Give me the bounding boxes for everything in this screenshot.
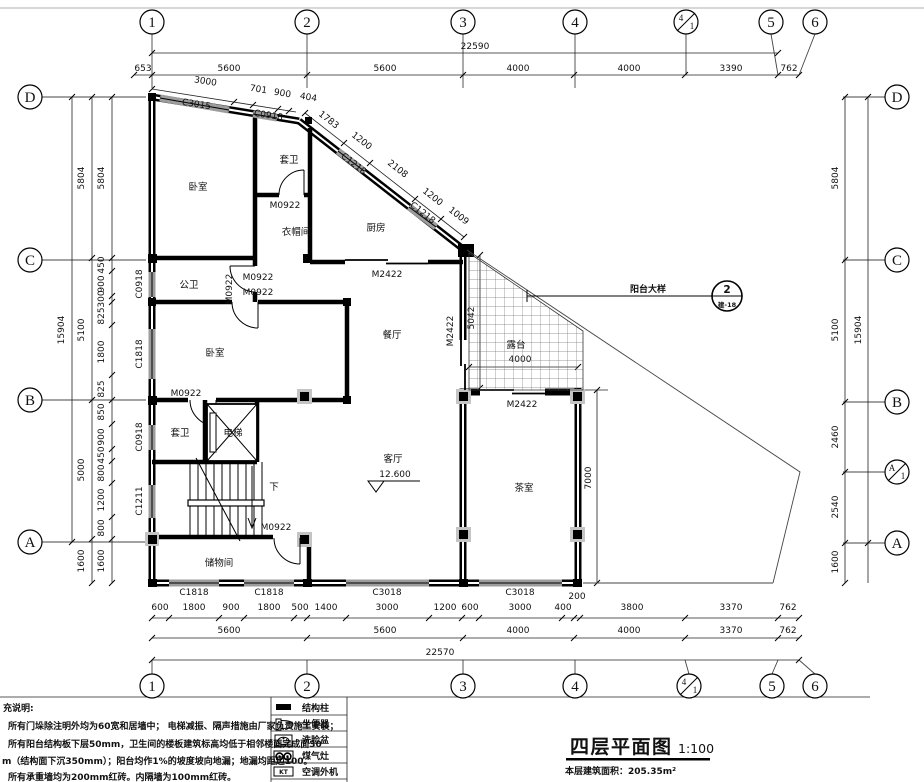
dim-label: 762 bbox=[780, 64, 797, 74]
room-label-living: 客厅 bbox=[383, 453, 403, 465]
room-label-storage: 储物间 bbox=[205, 557, 234, 569]
legend-label: 空调外机 bbox=[302, 766, 338, 778]
room-label-ensuite: 套卫 bbox=[279, 154, 299, 166]
window-tag: C0918 bbox=[135, 269, 145, 298]
drawing-scale: 1:100 bbox=[678, 741, 714, 756]
dim-label: 4000 bbox=[618, 64, 641, 74]
dim-label: 4000 bbox=[507, 64, 530, 74]
dim-label: 15904 bbox=[57, 315, 67, 344]
dim-label: 850 bbox=[97, 403, 107, 420]
dim-label: 200 bbox=[568, 592, 585, 602]
dim-label: 450 bbox=[97, 256, 107, 273]
room-label-bedroom-2: 卧室 bbox=[205, 347, 224, 359]
axis-bubble-B: B bbox=[25, 393, 35, 409]
dim-label: 1783 bbox=[316, 109, 340, 131]
dim-label: 701 bbox=[249, 84, 268, 97]
dim-label: 1200 bbox=[97, 488, 107, 511]
dim-label: 900 bbox=[222, 603, 239, 613]
door-tag: M0922 bbox=[270, 201, 301, 211]
drawing-title: 四层平面图 bbox=[570, 736, 673, 758]
axis-bubble-A-1: A bbox=[889, 463, 896, 473]
dim-label: 3370 bbox=[720, 603, 743, 613]
window-tag: C3018 bbox=[372, 588, 401, 598]
window-tag: C0918 bbox=[253, 109, 284, 123]
dim-label: 762 bbox=[779, 603, 796, 613]
notes-line: 所有承重墙均为200mm红砖。内隔墙为100mm红砖。 bbox=[8, 771, 236, 782]
window-tag: C1818 bbox=[254, 588, 283, 598]
room-label-cloakroom: 衣帽间 bbox=[282, 226, 311, 238]
axis-bubble-1: 1 bbox=[148, 15, 156, 31]
dim-label: 800 bbox=[97, 519, 107, 536]
dim-label: 500 bbox=[291, 603, 308, 613]
axis-bubble-5: 5 bbox=[767, 15, 775, 31]
axis-bubble-A-r: A bbox=[892, 536, 903, 552]
dim-label: 1009 bbox=[446, 205, 470, 227]
dim-label: 3370 bbox=[720, 626, 743, 636]
window-tag: C1218 bbox=[339, 151, 368, 177]
axis-bubble-4-1b: 1 bbox=[690, 21, 695, 31]
axis-bubble-2: 2 bbox=[303, 15, 311, 31]
dim-label: 4000 bbox=[507, 626, 530, 636]
dim-label: 825 bbox=[97, 307, 107, 324]
axis-bubble-1b: 1 bbox=[148, 679, 156, 695]
axis-bubble-B-r: B bbox=[892, 395, 902, 411]
dim-label: 22570 bbox=[426, 648, 455, 658]
dim-label: 5804 bbox=[77, 166, 87, 189]
elevation-marker: 12.600 bbox=[368, 470, 420, 492]
door-tag: M0922 bbox=[171, 389, 202, 399]
dim-label: 2460 bbox=[831, 425, 841, 448]
dim-label: 5804 bbox=[97, 166, 107, 189]
dim-label: 900 bbox=[97, 428, 107, 445]
window-tag: C0918 bbox=[135, 422, 145, 451]
window-tag: C1818 bbox=[179, 588, 208, 598]
dim-label: 404 bbox=[299, 92, 318, 105]
dim-label: 1400 bbox=[315, 603, 338, 613]
dim-label: 1600 bbox=[831, 550, 841, 573]
room-label-kitchen: 厨房 bbox=[366, 222, 385, 234]
dim-label: 600 bbox=[461, 603, 478, 613]
dim-label: 600 bbox=[151, 603, 168, 613]
dim-label: 5804 bbox=[831, 166, 841, 189]
terrace bbox=[467, 250, 800, 583]
notes-line: 所有门垛除注明外均为60宽和居墙中； 电梯减振、隔声措施由厂家负责施工安装； bbox=[8, 720, 339, 732]
dim-label: 5100 bbox=[831, 318, 841, 341]
dim-label: 2108 bbox=[385, 158, 409, 180]
callout-label: 阳台大样 bbox=[630, 283, 666, 295]
dim-label: 825 bbox=[97, 380, 107, 397]
dim-label: 15904 bbox=[854, 315, 864, 344]
axis-bubble-D-r: D bbox=[892, 90, 903, 106]
window-tag: C3018 bbox=[505, 588, 534, 598]
door-tag: M0922 bbox=[243, 273, 274, 283]
window-tag: C3015 bbox=[181, 98, 211, 112]
axis-bubble-6b: 6 bbox=[811, 679, 819, 695]
title-block: 四层平面图 1:100 本层建筑面积：205.35m² bbox=[565, 736, 714, 777]
dim-label: 1800 bbox=[97, 340, 107, 363]
window-tag: C1818 bbox=[135, 339, 145, 368]
axis-bubble-C-r: C bbox=[892, 253, 902, 269]
axis-bubble-A: A bbox=[25, 535, 36, 551]
ac-unit-icon: KT bbox=[274, 767, 293, 776]
dim-label: 2540 bbox=[831, 495, 841, 518]
column-icon bbox=[276, 704, 291, 710]
axis-bubble-2b: 2 bbox=[303, 679, 311, 695]
dim-label: 5600 bbox=[218, 626, 241, 636]
axis-bubble-C: C bbox=[25, 253, 35, 269]
dim-label: 3000 bbox=[193, 75, 217, 89]
dim-label: 5000 bbox=[77, 458, 87, 481]
dim-label: 3800 bbox=[621, 603, 644, 613]
ac-icon-text: KT bbox=[279, 769, 289, 776]
room-label-dining: 餐厅 bbox=[382, 329, 402, 341]
dim-label: 762 bbox=[779, 626, 796, 636]
dim-label: 800 bbox=[97, 464, 107, 481]
notes-line: m（结构面下沉350mm）；阳台均作1%的坡度坡向地漏；地漏均距边100。 bbox=[2, 755, 313, 767]
dim-label: 1800 bbox=[183, 603, 206, 613]
axis-bubble-4-1c: 4 bbox=[682, 677, 687, 687]
floor-plan-drawing: 1 2 3 4 4 1 5 6 1 2 3 4 4 1 5 6 D C B A … bbox=[0, 0, 924, 782]
dim-label: 1200 bbox=[349, 130, 373, 152]
dim-label: 3000 bbox=[509, 603, 532, 613]
door-tag: M0922 bbox=[225, 274, 235, 305]
callout-number: 2 bbox=[723, 284, 730, 296]
legend-label: 洗脸盆 bbox=[302, 734, 330, 746]
floor-plan-sheet: 1 2 3 4 4 1 5 6 1 2 3 4 4 1 5 6 D C B A … bbox=[0, 0, 924, 782]
axis-bubble-D: D bbox=[25, 90, 36, 106]
dim-label: 22590 bbox=[461, 42, 490, 52]
dim-label: 653 bbox=[134, 64, 151, 74]
room-label-bedroom: 卧室 bbox=[188, 181, 207, 193]
axis-bubble-3b: 3 bbox=[459, 679, 467, 695]
door-tag: M2422 bbox=[372, 270, 403, 280]
axis-bubble-4: 4 bbox=[571, 15, 579, 31]
dim-label: 900 bbox=[273, 88, 292, 101]
dim-label: 5600 bbox=[374, 64, 397, 74]
axis-bubble-6: 6 bbox=[811, 15, 819, 31]
legend-label: 结构柱 bbox=[302, 702, 329, 714]
dim-label: 5100 bbox=[77, 318, 87, 341]
axis-bubble-4b: 4 bbox=[571, 679, 579, 695]
window-tag: C1211 bbox=[135, 486, 145, 515]
axis-bubble-5b: 5 bbox=[768, 679, 776, 695]
axis-bubble-4-1d: 1 bbox=[693, 685, 698, 695]
floor-area-note: 本层建筑面积：205.35m² bbox=[565, 765, 676, 777]
notes-header: 充说明: bbox=[3, 702, 34, 714]
dim-label: 300 bbox=[97, 290, 107, 307]
notes-panel: 充说明: 所有门垛除注明外均为60宽和居墙中； 电梯减振、隔声措施由厂家负责施工… bbox=[2, 702, 339, 782]
door-tag: M0922 bbox=[261, 523, 292, 533]
callout-sheet-ref: 建-18 bbox=[717, 300, 737, 309]
dim-label: 1600 bbox=[77, 549, 87, 572]
door-tag: M2422 bbox=[446, 316, 456, 347]
room-label-ensuite-2: 套卫 bbox=[170, 427, 190, 439]
room-label-terrace: 露台 bbox=[506, 339, 525, 351]
dim-label: 900 bbox=[97, 275, 107, 292]
legend-label: 坐便器 bbox=[302, 718, 330, 730]
axis-bubble-3: 3 bbox=[459, 15, 467, 31]
dim-label: 1800 bbox=[258, 603, 281, 613]
dim-label: 7000 bbox=[584, 466, 594, 489]
door-tag: M2422 bbox=[507, 400, 538, 410]
dim-label: 5600 bbox=[218, 64, 241, 74]
room-label-tea: 茶室 bbox=[514, 482, 533, 494]
dim-label: 4000 bbox=[618, 626, 641, 636]
dim-label: 1600 bbox=[97, 549, 107, 572]
axis-bubble-A-1b: 1 bbox=[901, 471, 906, 481]
dim-label: 400 bbox=[554, 603, 571, 613]
dim-label: 450 bbox=[97, 446, 107, 463]
dim-label: 3390 bbox=[720, 64, 743, 74]
detail-callout: 阳台大样 2 建-18 bbox=[527, 281, 742, 311]
stair-direction-label: 下 bbox=[269, 482, 279, 493]
axis-bubble-4-1: 4 bbox=[679, 13, 684, 23]
elevation-value: 12.600 bbox=[379, 470, 411, 480]
dim-label: 3000 bbox=[376, 603, 399, 613]
legend-label: 煤气灶 bbox=[302, 750, 329, 762]
dim-label: 1200 bbox=[434, 603, 457, 613]
room-label-elevator: 电梯 bbox=[223, 427, 243, 439]
door-tag: M0922 bbox=[243, 288, 274, 298]
room-label-public-wc: 公卫 bbox=[179, 280, 199, 291]
dim-label: 5600 bbox=[374, 626, 397, 636]
